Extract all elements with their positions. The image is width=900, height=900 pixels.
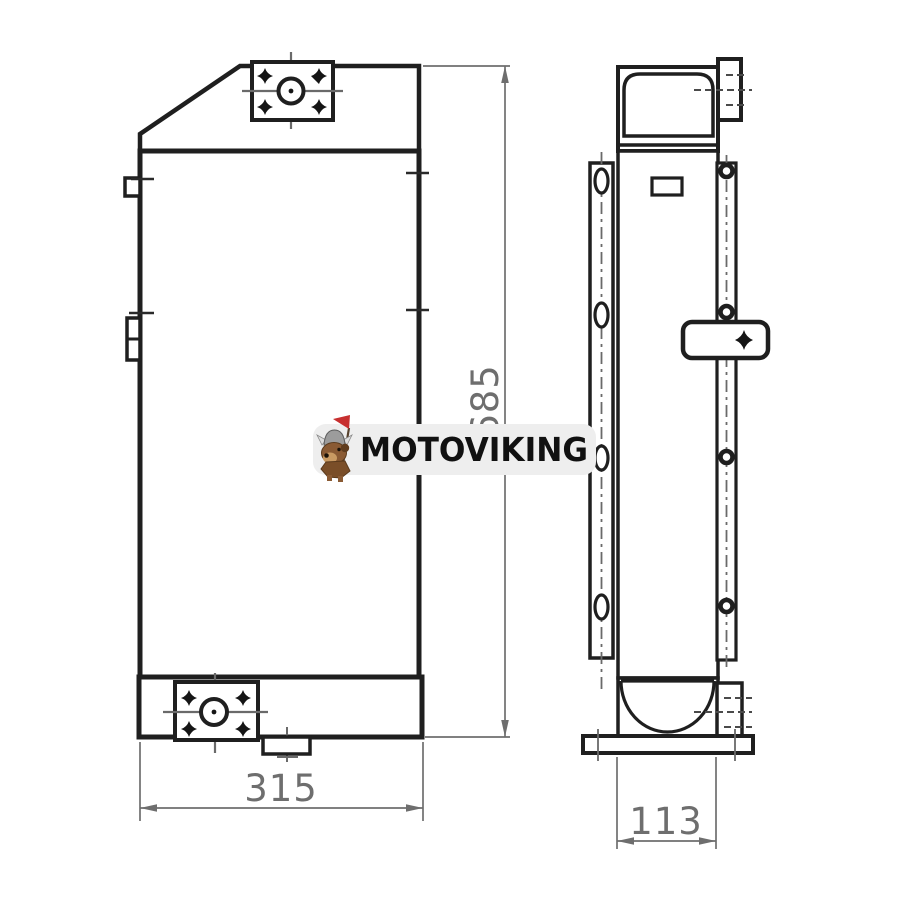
front-core-body [140,151,419,677]
side-body [618,151,718,678]
front-left-clip-upper [125,178,140,196]
arrowhead-icon [140,804,157,812]
dimension-width-label: 315 [244,767,318,810]
side-left-strip [590,152,613,690]
technical-drawing-svg: 315 113 685 [0,0,900,900]
brand-wordmark: MOTOVIKING [360,430,588,469]
front-left-clip-lower [127,318,140,360]
front-top-mount-plate [242,52,343,129]
side-view [583,59,768,761]
oil-cooler-drawing-page: 315 113 685 [0,0,900,900]
motoviking-watermark: MOTOVIKING [313,415,596,482]
side-right-rail [717,155,736,672]
side-port [652,178,682,195]
front-view [125,52,429,762]
side-clamp-block [683,322,768,358]
side-bottom-tank [618,678,718,736]
side-top-tank-inner [624,74,713,136]
arrowhead-icon [406,804,423,812]
arrowhead-icon [501,66,509,83]
arrowhead-icon [501,720,509,737]
front-bottom-mount-plate [163,673,268,753]
dimension-depth-label: 113 [629,800,703,843]
